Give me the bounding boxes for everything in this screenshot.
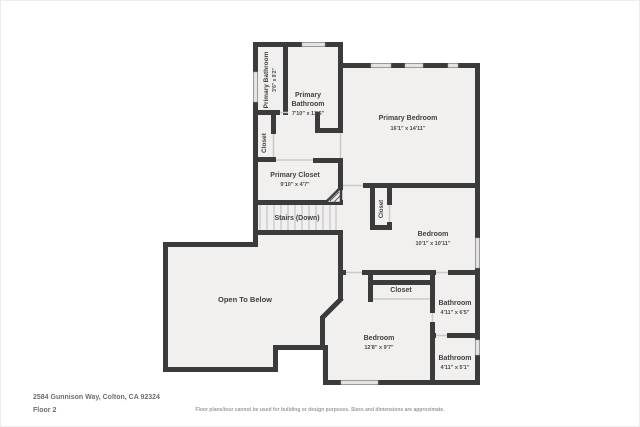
- label-bedroom-south: Bedroom: [364, 335, 395, 342]
- label-hall-closet: Closet: [261, 132, 268, 153]
- label-primary-bedroom: Primary Bedroom: [379, 115, 438, 122]
- dims-bedroom-ne: 10'1" x 10'11": [415, 241, 450, 247]
- label-closet-south: Closet: [390, 287, 412, 294]
- window-primary-bedroom-3: [448, 64, 458, 68]
- property-address: 2584 Gunnison Way, Colton, CA 92324: [33, 394, 160, 401]
- label-bathroom-lower: Bathroom: [438, 355, 471, 362]
- floor-plan-drawing: Primary Bathroom 3'6" x 8'2" Primary Bat…: [0, 0, 640, 427]
- label-bedroom-closet: Closet: [379, 200, 385, 218]
- label-primary-bathroom-line2: Bathroom: [291, 101, 324, 108]
- floor-label: Floor 2: [33, 407, 56, 414]
- window-east-bathroom: [476, 340, 480, 355]
- window-south-bedroom: [341, 381, 378, 385]
- window-primary-bedroom-1: [371, 64, 391, 68]
- dims-bathroom-lower: 4'11" x 5'1": [441, 365, 470, 371]
- label-bathroom-upper: Bathroom: [438, 300, 471, 307]
- label-primary-bathroom-line1: Primary: [295, 92, 321, 99]
- dims-primary-bathroom: 7'10" x 13'5": [292, 111, 325, 117]
- label-open-to-below: Open To Below: [218, 295, 272, 304]
- window-east-bedroom: [476, 238, 480, 268]
- label-primary-closet: Primary Closet: [270, 172, 320, 179]
- dims-bedroom-south: 12'8" x 9'7": [364, 345, 394, 351]
- dims-primary-bedroom: 16'1" x 14'11": [390, 126, 425, 132]
- window-west-primary-bathroom: [254, 72, 258, 102]
- label-bedroom-ne: Bedroom: [418, 231, 449, 238]
- dims-primary-bathroom-small: 3'6" x 8'2": [272, 67, 278, 91]
- label-stairs-down: Stairs (Down): [274, 215, 319, 222]
- floor-plan-page: Primary Bathroom 3'6" x 8'2" Primary Bat…: [0, 0, 640, 427]
- disclaimer-text: Floor plans/tour cannot be used for buil…: [140, 407, 500, 413]
- window-north-primary-bathroom: [302, 43, 325, 47]
- dims-primary-closet: 9'10" x 4'7": [280, 182, 310, 188]
- dims-bathroom-upper: 4'11" x 6'5": [441, 310, 470, 316]
- window-primary-bedroom-2: [405, 64, 423, 68]
- label-primary-bathroom-small: Primary Bathroom: [263, 51, 270, 108]
